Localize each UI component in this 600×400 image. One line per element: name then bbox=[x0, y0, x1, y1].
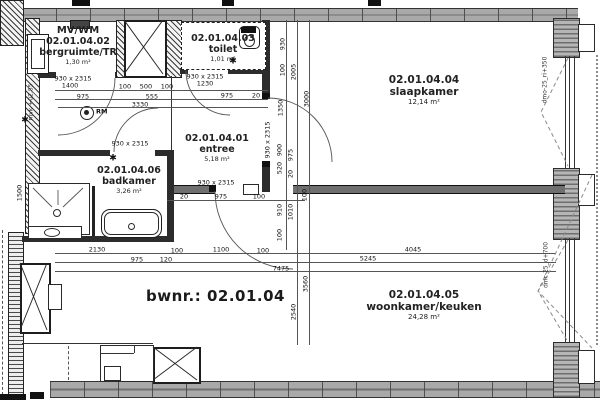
room-area: 1,30 m² bbox=[38, 58, 118, 67]
unit-number-label: bwnr.: 02.01.04 bbox=[146, 287, 285, 305]
dimension-label: 900 bbox=[277, 144, 284, 156]
room-area: 12,14 m² bbox=[369, 98, 479, 107]
room-code: 02.01.04.03 bbox=[184, 33, 262, 44]
dimension-label: 7475 bbox=[273, 266, 290, 273]
dimension-label: 1350 bbox=[278, 100, 285, 117]
room-name: toilet bbox=[184, 44, 262, 55]
star-icon: ✱ bbox=[21, 118, 29, 125]
star-icon: ✱ bbox=[229, 59, 237, 66]
room-bergruimte: MV/WM 02.01.04.02 bergruimte/TR 1,30 m² bbox=[38, 25, 118, 67]
room-slaapkamer: 02.01.04.04 slaapkamer 12,14 m² bbox=[369, 74, 479, 107]
smoke-detector-label: RM bbox=[96, 109, 107, 116]
room-extra-label: MV/WM bbox=[38, 25, 118, 36]
dimension-label: 2130 bbox=[89, 247, 106, 254]
dimension-label: 1500 bbox=[17, 185, 24, 202]
room-area: 3,26 m² bbox=[89, 187, 169, 196]
dimension-label: 100 bbox=[171, 248, 183, 255]
dimension-label: 975 bbox=[215, 194, 227, 201]
star-icon: ✱ bbox=[109, 156, 117, 163]
dimension-label: 20 bbox=[180, 194, 188, 201]
dimension-label: 100 bbox=[257, 248, 269, 255]
dimension-label: 100 bbox=[119, 84, 131, 91]
dimension-label: 1400 bbox=[62, 83, 79, 90]
dimension-label: 930 x 2315 bbox=[265, 122, 272, 159]
dimension-label: 120 bbox=[160, 257, 172, 264]
dimension-label: 500 bbox=[140, 84, 152, 91]
dimension-label: 520 bbox=[277, 162, 284, 174]
dimension-label: 3330 bbox=[132, 102, 149, 109]
dimension-label: 975 bbox=[77, 94, 89, 101]
dimension-label: 910 bbox=[277, 204, 284, 216]
floor-plan: MV/WM 02.01.04.02 bergruimte/TR 1,30 m² … bbox=[0, 0, 600, 400]
dimension-label: 975 bbox=[131, 257, 143, 264]
dimension-label: 1010 bbox=[288, 204, 295, 221]
dimension-label: 3000 bbox=[304, 91, 311, 108]
dimension-label: 930 x 2315 bbox=[198, 180, 235, 187]
dimension-label: dmo-25_ri+350 bbox=[542, 57, 549, 104]
dimension-label: 2005 bbox=[291, 64, 298, 81]
dimension-label: 100 bbox=[253, 194, 265, 201]
room-area: 1,01 m² bbox=[184, 55, 262, 64]
dimension-label: 4045 bbox=[405, 247, 422, 254]
dimension-label: 100 bbox=[277, 229, 284, 241]
dimension-label: 1100 bbox=[213, 247, 230, 254]
room-woonkamer: 02.01.04.05 woonkamer/keuken 24,28 m² bbox=[364, 289, 484, 322]
dimension-label: 3560 bbox=[303, 276, 310, 293]
dimension-label: dmc-25_d+700 bbox=[543, 242, 550, 288]
dimension-label: 20 bbox=[288, 170, 295, 178]
dimension-label: 975 bbox=[288, 149, 295, 161]
room-badkamer: 02.01.04.06 badkamer 3,26 m² bbox=[89, 165, 169, 196]
room-area: 24,28 m² bbox=[364, 313, 484, 322]
dimension-label: 100 bbox=[302, 189, 309, 201]
room-name: bergruimte/TR bbox=[38, 47, 118, 58]
room-code: 02.01.04.02 bbox=[38, 36, 118, 47]
room-entree: 02.01.04.01 entree 5,18 m² bbox=[174, 133, 260, 164]
dimension-label: 5245 bbox=[360, 256, 377, 263]
dimension-label: 975 bbox=[221, 93, 233, 100]
dimension-label: 100 bbox=[161, 84, 173, 91]
room-toilet: 02.01.04.03 toilet 1,01 m² bbox=[184, 33, 262, 64]
dimension-label: 930 x 2315 bbox=[112, 141, 149, 148]
dimension-label: 100 bbox=[280, 64, 287, 76]
room-code: 02.01.04.05 bbox=[364, 289, 484, 301]
room-name: badkamer bbox=[89, 176, 169, 187]
dimension-label: 2540 bbox=[291, 304, 298, 321]
dimension-label: 20 bbox=[252, 93, 260, 100]
dimension-label: 555 bbox=[146, 94, 158, 101]
room-code: 02.01.04.06 bbox=[89, 165, 169, 176]
dimension-label: 930 bbox=[280, 38, 287, 50]
room-code: 02.01.04.01 bbox=[174, 133, 260, 144]
room-code: 02.01.04.04 bbox=[369, 74, 479, 86]
dimension-label: 1230 bbox=[197, 81, 214, 88]
room-name: entree bbox=[174, 144, 260, 155]
room-name: woonkamer/keuken bbox=[364, 301, 484, 313]
room-area: 5,18 m² bbox=[174, 155, 260, 164]
room-name: slaapkamer bbox=[369, 86, 479, 98]
